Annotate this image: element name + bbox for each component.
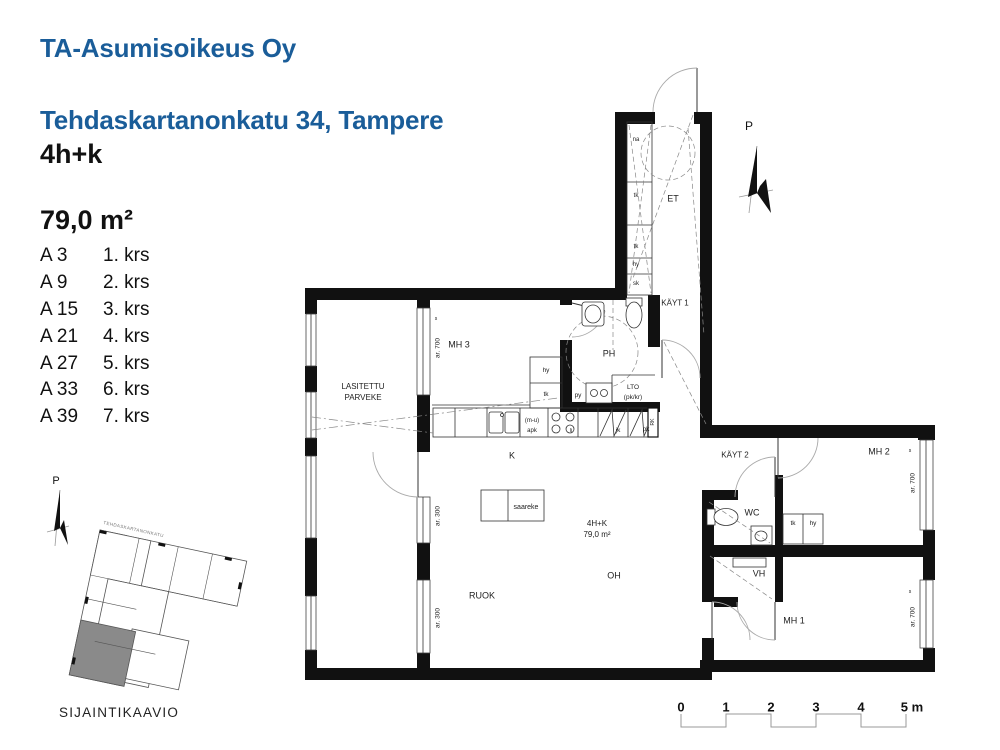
unit-number: A 33 — [40, 379, 103, 401]
company-name: TA-Asumisoikeus Oy — [40, 33, 296, 63]
list-item: A 397. krs — [40, 404, 149, 431]
apartment-type: 4h+k — [40, 139, 102, 169]
unit-floor: 6. krs — [103, 379, 149, 401]
site-plan — [47, 490, 247, 706]
site-north-arrow-icon — [47, 490, 69, 546]
room-label-lto: LTO (pk/kr) — [624, 383, 642, 403]
unit-floor: 5. krs — [103, 353, 149, 375]
unit-floor: 1. krs — [103, 245, 149, 267]
street-address: Tehdaskartanonkatu 34, Tampere — [40, 105, 443, 135]
room-label-ph: PH — [603, 349, 616, 360]
freezer-label-pk: pk — [643, 425, 650, 435]
scale-tick: 1 — [722, 700, 729, 715]
room-label-wc: WC — [745, 508, 760, 519]
room-label-et: ET — [667, 194, 679, 205]
unit-number: A 3 — [40, 245, 103, 267]
site-plan-caption: SIJAINTIKAAVIO — [59, 705, 179, 720]
unit-floor-list: A 31. krs A 92. krs A 153. krs A 214. kr… — [40, 243, 149, 431]
unit-number: A 39 — [40, 406, 103, 428]
window-mark-s: s — [909, 448, 912, 454]
closet-label-tk: tk — [790, 519, 795, 529]
room-label-kitchen: K — [509, 451, 515, 462]
list-item: A 92. krs — [40, 270, 149, 297]
scale-bar — [681, 714, 906, 727]
room-label-mh2: MH 2 — [868, 447, 890, 458]
room-label-vh: VH — [753, 569, 766, 580]
unit-floor: 2. krs — [103, 272, 149, 294]
window-mark-s: s — [909, 589, 912, 595]
site-north-label: P — [52, 475, 59, 487]
scale-tick: 2 — [767, 700, 774, 715]
unit-number: A 27 — [40, 353, 103, 375]
room-label-mh1: MH 1 — [783, 616, 805, 627]
unit-floor: 4. krs — [103, 326, 149, 348]
washer-label-py: py — [575, 391, 582, 401]
room-label-ruok: RUOK — [469, 591, 495, 602]
room-label-oh: OH — [607, 571, 621, 582]
room-label-kayt2: KÄYT 2 — [721, 450, 748, 461]
apartment-type-area: 4h+k 79,0 m² — [40, 138, 133, 237]
closet-label-sk: sk — [633, 279, 639, 289]
scale-tick: 3 — [812, 700, 819, 715]
plan-type-area-label: 4H+K 79,0 m² — [583, 518, 610, 540]
closet-label-hy: hy — [633, 260, 639, 270]
dishwasher-label-apk: (m-u) apk — [525, 416, 539, 436]
unit-number: A 9 — [40, 272, 103, 294]
unit-number: A 21 — [40, 326, 103, 348]
room-label-mh3: MH 3 — [448, 340, 470, 351]
closet-label-na: na — [633, 135, 640, 145]
list-item: A 336. krs — [40, 377, 149, 404]
scale-tick: 0 — [677, 700, 684, 715]
list-item: A 214. krs — [40, 323, 149, 350]
window-mark-s: s — [435, 316, 438, 322]
north-label: P — [745, 119, 753, 133]
closet-label-tk: tk — [543, 390, 548, 400]
window-mark-ar700: ar. 700 — [910, 473, 917, 493]
room-label-kayt1: KÄYT 1 — [661, 298, 688, 309]
window-mark-ar700: ar. 700 — [910, 607, 917, 627]
north-arrow-icon — [739, 146, 773, 213]
site-highlighted-unit — [69, 620, 135, 686]
page-title: TA-Asumisoikeus Oy Tehdaskartanonkatu 34… — [40, 30, 443, 138]
list-item: A 275. krs — [40, 350, 149, 377]
room-label-balcony: LASITETTU PARVEKE — [341, 381, 384, 403]
stove-label-li: li — [570, 428, 572, 434]
window-mark-ar700: ar. 700 — [435, 338, 442, 358]
closet-label-hy: hy — [810, 519, 817, 529]
fridge-label-jk: jk — [616, 426, 621, 436]
list-item: A 153. krs — [40, 297, 149, 324]
shaft-label-rk: RK — [650, 419, 656, 426]
scale-end-label: 5 m — [901, 700, 923, 715]
unit-number: A 15 — [40, 299, 103, 321]
closet-label-hy: hy — [543, 366, 550, 376]
unit-floor: 3. krs — [103, 299, 149, 321]
list-item: A 31. krs — [40, 243, 149, 270]
walls — [305, 112, 935, 680]
site-building-outline — [69, 530, 246, 706]
floor-plan-page: TA-Asumisoikeus Oy Tehdaskartanonkatu 34… — [0, 0, 1000, 750]
closet-label-tk: tk — [634, 242, 639, 252]
scale-tick: 4 — [857, 700, 864, 715]
window-mark-ar300: ar. 300 — [435, 506, 442, 526]
windows — [306, 308, 933, 653]
closet-label-tk: tk — [634, 191, 639, 201]
apartment-area: 79,0 m² — [40, 205, 133, 235]
island-label: saareke — [514, 503, 539, 513]
unit-floor: 7. krs — [103, 406, 149, 428]
window-mark-ar300: ar. 300 — [435, 608, 442, 628]
